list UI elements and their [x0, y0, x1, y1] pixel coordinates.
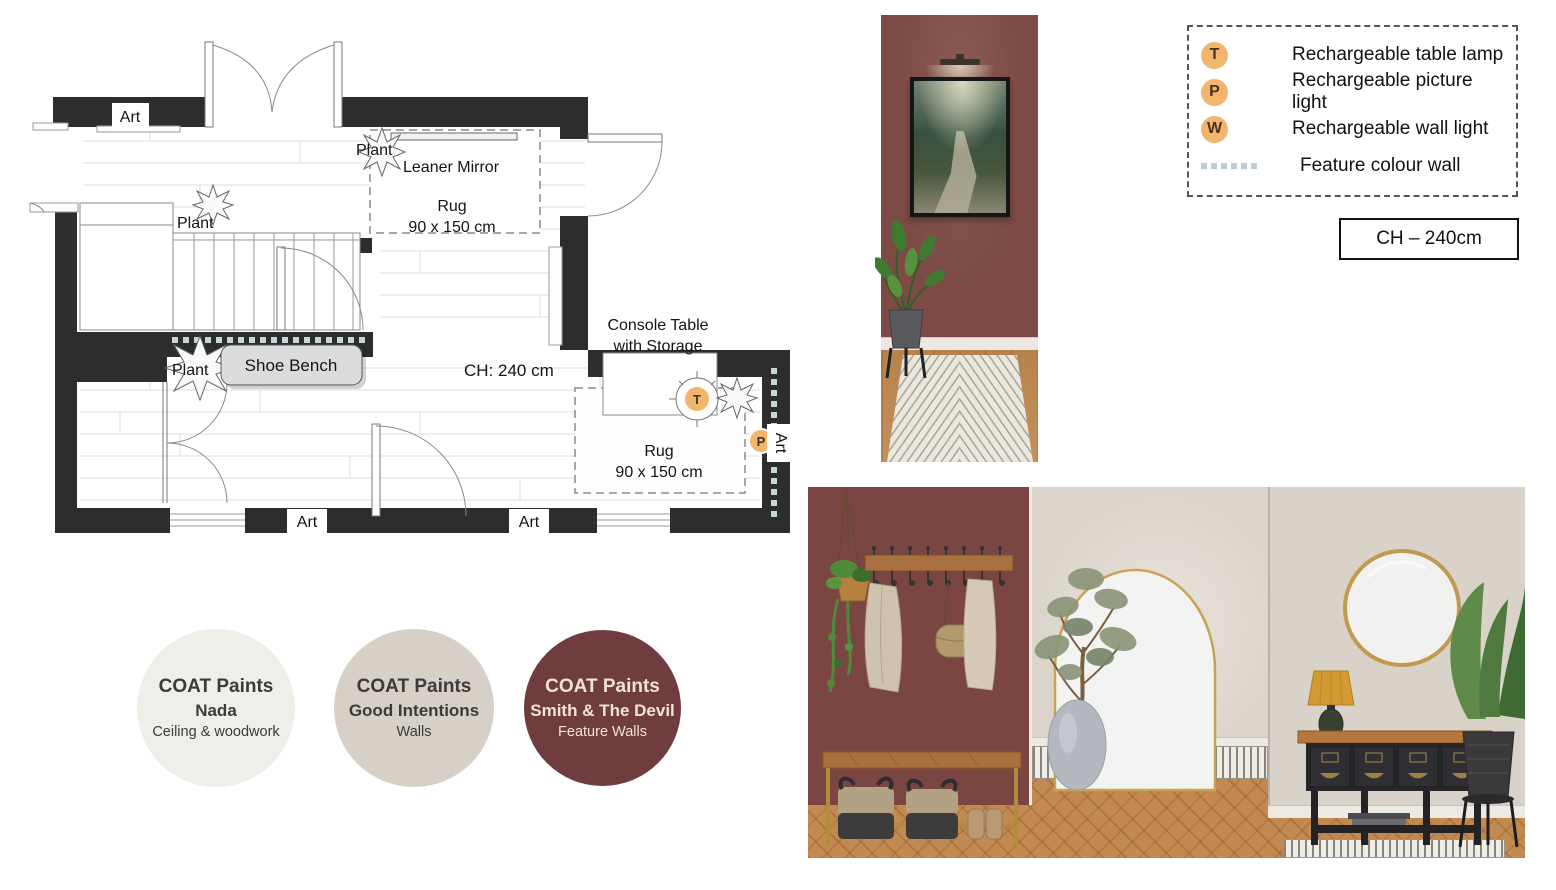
inner-door-leaf [372, 424, 380, 516]
forest-artwork [914, 81, 1006, 213]
feature-wall-dots-icon [1201, 163, 1257, 169]
legend-row-wall-light: W Rechargeable wall light [1201, 114, 1506, 144]
rug-top-label: Rug [437, 198, 466, 215]
light-beam [914, 81, 1006, 160]
tree-pot [1048, 700, 1106, 790]
marker-t-letter: T [693, 392, 701, 407]
legend-label: Feature colour wall [1300, 155, 1461, 177]
front-door-leaf-left [205, 42, 213, 127]
shoe-bench: Shoe Bench [221, 345, 366, 389]
paint-use: Walls [397, 724, 432, 740]
paint-use: Ceiling & woodwork [152, 724, 279, 740]
plant-label-mirror: Plant [356, 142, 393, 159]
floor-plan: Shoe Bench T P Art Art Art Art Plant Pla… [0, 0, 800, 560]
ceiling-height-value: CH – 240cm [1376, 228, 1482, 250]
side-door-leaf [588, 134, 662, 142]
wall-light-icon: W [1201, 116, 1228, 143]
rug-top [370, 130, 540, 233]
rug-bottom-label: Rug [644, 443, 673, 460]
plant-label-stairs: Plant [177, 215, 214, 232]
paint-brand: COAT Paints [159, 676, 274, 698]
paint-brand: COAT Paints [545, 676, 660, 698]
paint-brand: COAT Paints [357, 676, 472, 698]
framed-forest-art [910, 77, 1010, 217]
art-label-right: Art [772, 433, 789, 454]
console-label-line1: Console Table [607, 317, 708, 334]
marker-p-letter: P [757, 434, 766, 449]
leaner-mirror-label: Leaner Mirror [403, 159, 500, 176]
table-lamp-icon: T [1201, 42, 1228, 69]
legend-label: Rechargeable picture light [1292, 70, 1506, 114]
corner-plant [1450, 582, 1525, 847]
closet-partition [163, 382, 167, 503]
art-label-top: Art [120, 109, 141, 126]
hall-door-leaf [277, 247, 285, 330]
round-mirror [1345, 551, 1459, 665]
plant-leaves [875, 219, 945, 300]
moodboard-canvas: Shoe Bench T P Art Art Art Art Plant Pla… [0, 0, 1556, 890]
ceiling-height-box: CH – 240cm [1339, 218, 1519, 260]
staircase [80, 203, 360, 330]
picture-light-icon: P [1201, 79, 1228, 106]
hanging-coat-left [865, 583, 902, 692]
potted-plant [875, 210, 945, 385]
paint-name: Good Intentions [349, 701, 479, 721]
hallway-render-vertical [881, 15, 1038, 462]
paint-use: Feature Walls [558, 724, 647, 740]
paint-name: Nada [195, 701, 237, 721]
art-label-bottom-right: Art [519, 514, 540, 531]
plant-label-bench: Plant [172, 362, 209, 379]
legend-label: Rechargeable wall light [1292, 118, 1488, 140]
woven-basket [906, 781, 958, 839]
planter-pot [889, 310, 923, 348]
hallway-render-wide [808, 487, 1525, 858]
legend-label: Rechargeable table lamp [1292, 44, 1503, 66]
shoe-bench-label: Shoe Bench [245, 356, 338, 375]
legend-row-table-lamp: T Rechargeable table lamp [1201, 40, 1506, 70]
rug-top-size: 90 x 150 cm [408, 219, 495, 236]
legend-row-feature-wall: Feature colour wall [1201, 151, 1506, 181]
plant-stand [1460, 801, 1517, 847]
render-b-furniture [808, 487, 1525, 858]
coat-rack [865, 546, 1013, 586]
hanging-plant [826, 487, 872, 692]
hanging-coat-right [964, 579, 996, 690]
legend-box: T Rechargeable table lamp P Rechargeable… [1187, 25, 1518, 197]
ceiling-height-room-label: CH: 240 cm [464, 361, 554, 380]
paint-swatch-good-intentions: COAT Paints Good Intentions Walls [334, 629, 494, 787]
paint-swatch-nada: COAT Paints Nada Ceiling & woodwork [137, 629, 295, 787]
legend-row-picture-light: P Rechargeable picture light [1201, 77, 1506, 107]
front-door-leaf-right [334, 42, 342, 127]
console-label-line2: with Storage [613, 338, 703, 355]
paint-name: Smith & The Devil [530, 701, 675, 721]
books [1348, 813, 1410, 819]
woven-basket [838, 779, 894, 839]
table-lamp [1308, 671, 1354, 739]
art-label-bottom-left: Art [297, 514, 318, 531]
paint-swatch-smith-devil: COAT Paints Smith & The Devil Feature Wa… [524, 630, 681, 786]
leaner-mirror-symbol [391, 133, 517, 140]
planter-stand [887, 348, 925, 378]
rug-bottom-size: 90 x 150 cm [615, 464, 702, 481]
